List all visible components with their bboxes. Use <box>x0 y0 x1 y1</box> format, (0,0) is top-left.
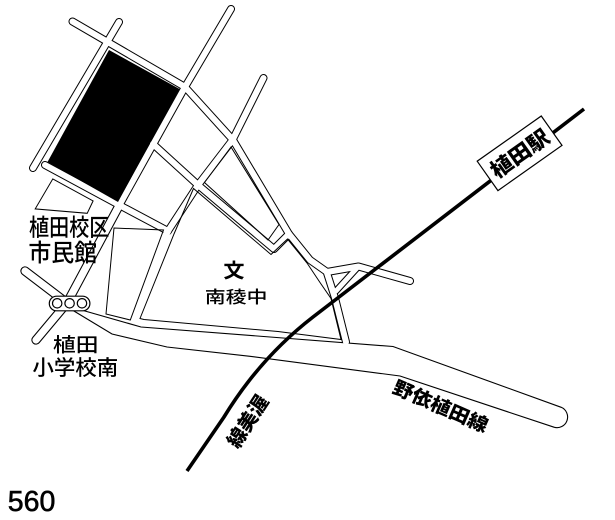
svg-text:560: 560 <box>8 486 56 518</box>
